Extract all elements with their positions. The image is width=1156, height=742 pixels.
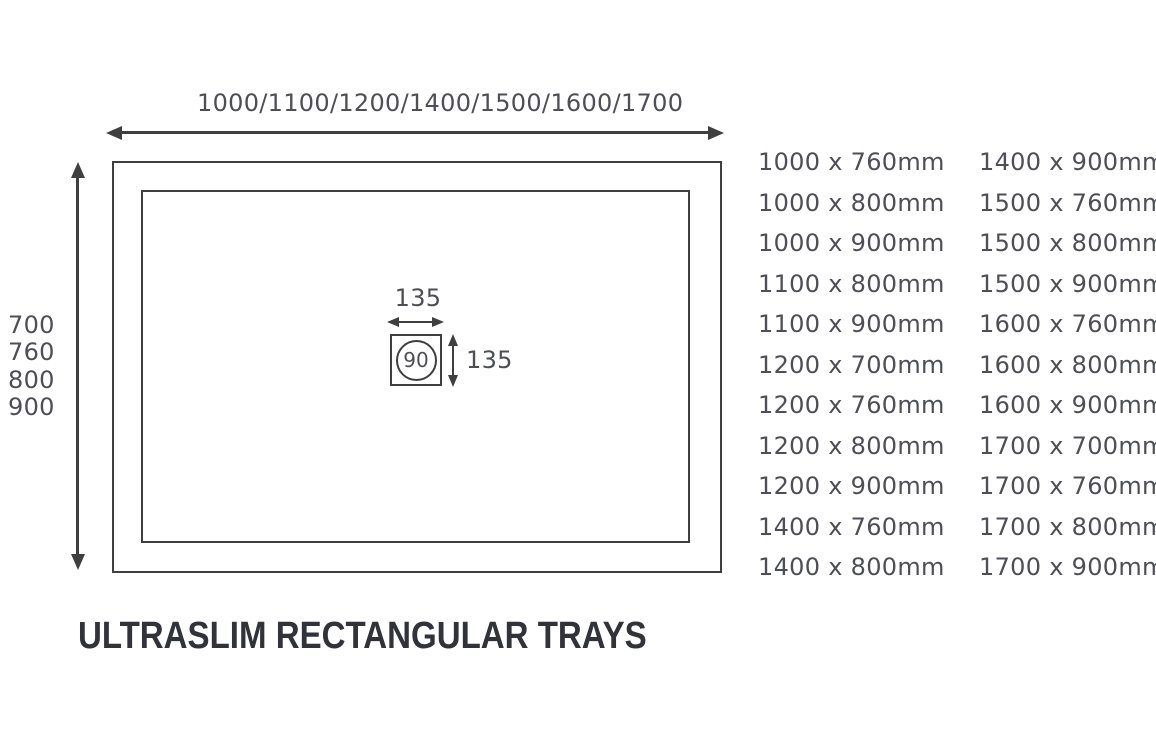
arrow-shaft (76, 170, 79, 562)
size-item: 1500 x 760mm (979, 183, 1156, 224)
size-item: 1000 x 760mm (758, 142, 958, 183)
size-item: 1400 x 800mm (758, 547, 958, 588)
waste-width-arrow (387, 316, 444, 328)
size-item: 1200 x 800mm (758, 426, 958, 467)
spec-sheet: 1000/1100/1200/1400/1500/1600/1700 700 7… (0, 0, 1156, 742)
arrowhead-down-icon (71, 554, 85, 570)
depth-options-labels: 700 760 800 900 (8, 312, 55, 421)
size-item: 1400 x 900mm (979, 142, 1156, 183)
size-item: 1700 x 700mm (979, 426, 1156, 467)
size-item: 1400 x 760mm (758, 507, 958, 548)
depth-dimension-arrow (70, 162, 85, 570)
depth-option: 700 (8, 312, 55, 339)
waste-diameter-label: 90 (403, 348, 428, 372)
depth-option: 800 (8, 367, 55, 394)
waste-depth-arrow (447, 334, 459, 387)
size-item: 1100 x 900mm (758, 304, 958, 345)
waste-square-outline: 90 (390, 334, 442, 386)
size-item: 1600 x 900mm (979, 385, 1156, 426)
page-title: ULTRASLIM RECTANGULAR TRAYS (78, 614, 647, 658)
waste-width-label: 135 (385, 284, 451, 312)
size-item: 1200 x 900mm (758, 466, 958, 507)
arrow-shaft (114, 131, 716, 134)
size-item: 1500 x 900mm (979, 264, 1156, 305)
size-item: 1700 x 800mm (979, 507, 1156, 548)
arrowhead-right-icon (708, 126, 724, 140)
waste-depth-label: 135 (466, 346, 513, 374)
size-item: 1200 x 700mm (758, 345, 958, 386)
arrowhead-down-icon (448, 375, 458, 387)
size-item: 1200 x 760mm (758, 385, 958, 426)
size-item: 1700 x 900mm (979, 547, 1156, 588)
size-list-column-1: 1000 x 760mm 1000 x 800mm 1000 x 900mm 1… (758, 142, 958, 588)
size-item: 1700 x 760mm (979, 466, 1156, 507)
depth-option: 760 (8, 339, 55, 366)
arrowhead-right-icon (432, 317, 444, 327)
waste-circle-outline: 90 (396, 340, 437, 381)
size-item: 1600 x 800mm (979, 345, 1156, 386)
size-item: 1500 x 800mm (979, 223, 1156, 264)
size-item: 1000 x 800mm (758, 183, 958, 224)
size-list-column-2: 1400 x 900mm 1500 x 760mm 1500 x 800mm 1… (979, 142, 1156, 588)
size-item: 1000 x 900mm (758, 223, 958, 264)
size-item: 1600 x 760mm (979, 304, 1156, 345)
width-options-label: 1000/1100/1200/1400/1500/1600/1700 (197, 89, 647, 117)
size-item: 1100 x 800mm (758, 264, 958, 305)
width-dimension-arrow (106, 125, 724, 140)
depth-option: 900 (8, 394, 55, 421)
